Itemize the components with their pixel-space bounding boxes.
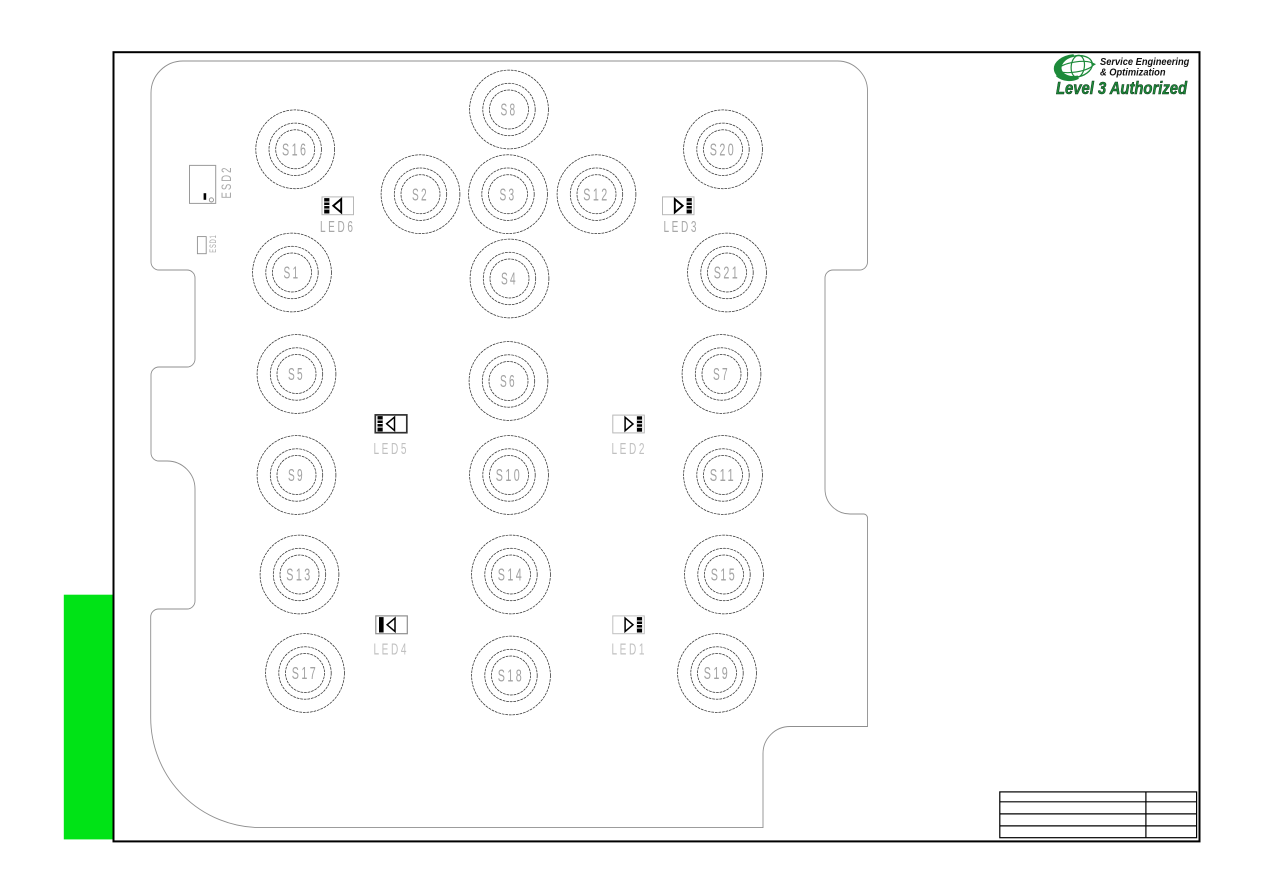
- svg-text:LED1: LED1: [612, 642, 648, 659]
- svg-text:S3: S3: [500, 184, 517, 204]
- svg-text:S13: S13: [286, 565, 313, 585]
- svg-text:ESD2: ESD2: [218, 166, 234, 199]
- svg-text:S17: S17: [292, 663, 319, 683]
- svg-text:S4: S4: [501, 269, 518, 289]
- svg-text:S19: S19: [704, 663, 731, 683]
- svg-text:S7: S7: [713, 364, 730, 384]
- svg-text:S12: S12: [583, 184, 610, 204]
- svg-text:LED6: LED6: [320, 219, 356, 236]
- svg-text:LED2: LED2: [612, 441, 648, 458]
- svg-text:S10: S10: [496, 465, 523, 485]
- svg-text:LED3: LED3: [664, 219, 700, 236]
- svg-text:S16: S16: [282, 139, 309, 159]
- svg-text:S6: S6: [500, 371, 517, 391]
- svg-text:S18: S18: [498, 666, 525, 686]
- svg-text:S9: S9: [288, 465, 305, 485]
- svg-text:S2: S2: [412, 184, 429, 204]
- svg-text:ESD1: ESD1: [208, 234, 219, 253]
- svg-text:S1: S1: [284, 263, 301, 283]
- svg-text:Level 3 Authorized: Level 3 Authorized: [1056, 78, 1187, 98]
- svg-text:S15: S15: [711, 565, 738, 585]
- svg-text:S5: S5: [288, 364, 305, 384]
- svg-text:LED5: LED5: [374, 441, 410, 458]
- svg-text:LED4: LED4: [374, 642, 410, 659]
- svg-text:S21: S21: [714, 263, 741, 283]
- svg-text:S20: S20: [710, 139, 737, 159]
- svg-text:& Optimization: & Optimization: [1100, 67, 1166, 78]
- svg-text:S11: S11: [710, 465, 737, 485]
- svg-text:S14: S14: [498, 565, 525, 585]
- svg-text:S8: S8: [501, 100, 518, 120]
